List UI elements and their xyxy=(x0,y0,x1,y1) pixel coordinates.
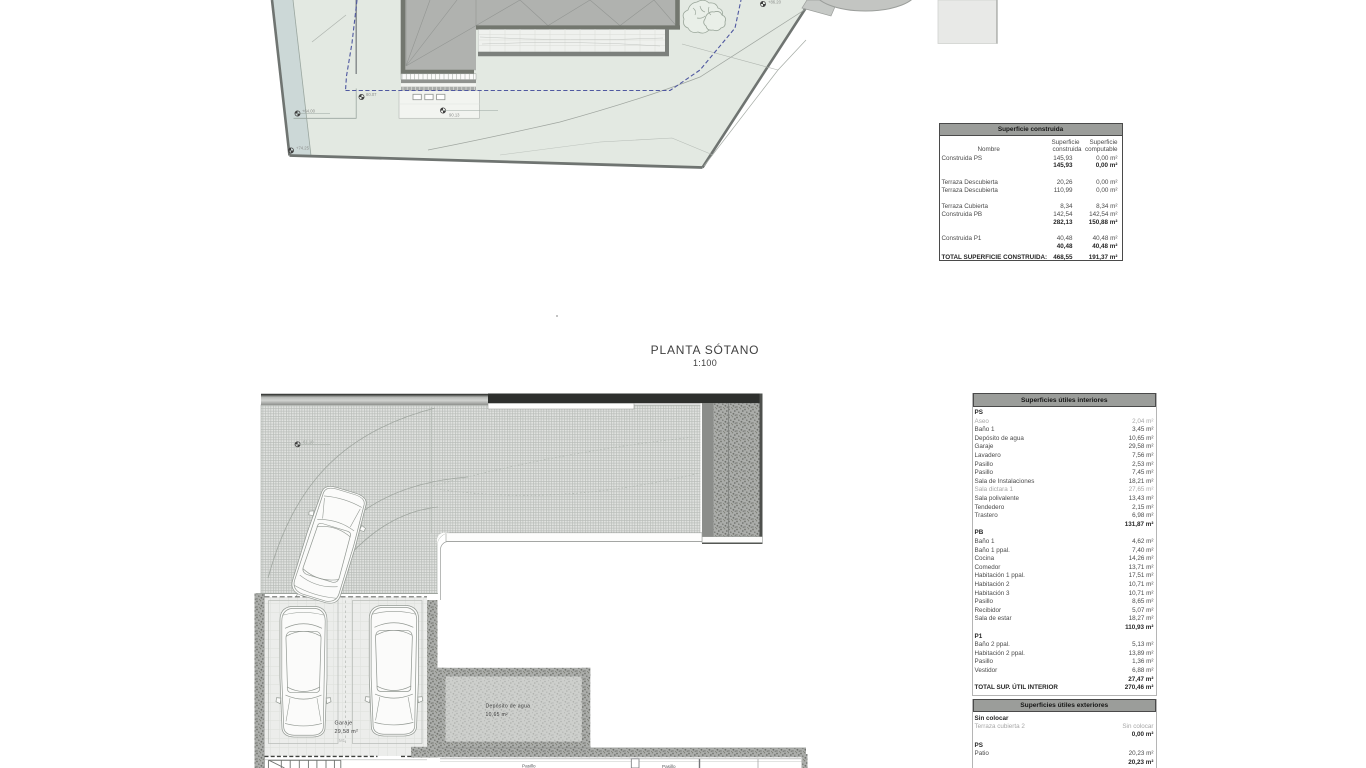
svg-text:Depósito de agua: Depósito de agua xyxy=(486,704,531,710)
svg-text:+74.25: +74.25 xyxy=(296,146,310,151)
svg-text:80.07: 80.07 xyxy=(366,92,377,97)
svg-text:+86.20: +86.20 xyxy=(768,0,782,5)
svg-text:M1: M1 xyxy=(339,738,346,743)
svg-text:Garaje: Garaje xyxy=(335,721,353,727)
svg-text:29,58 m²: 29,58 m² xyxy=(335,729,359,735)
svg-text:Pasillo: Pasillo xyxy=(522,764,536,768)
svg-text:61.10: 61.10 xyxy=(303,440,314,445)
svg-text:Pasillo: Pasillo xyxy=(662,764,676,768)
svg-text:10,65 m²: 10,65 m² xyxy=(486,712,509,718)
svg-text:+64.00: +64.00 xyxy=(302,109,316,114)
svg-text:90.13: 90.13 xyxy=(449,113,460,118)
